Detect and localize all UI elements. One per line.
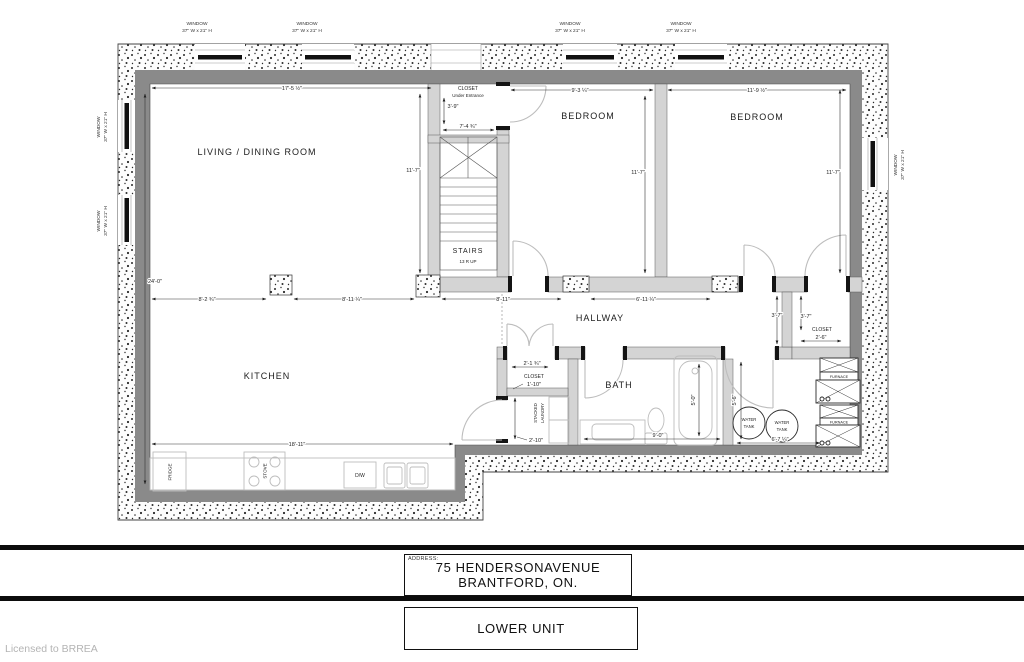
dim-span4: 6'-11 ¼" bbox=[636, 297, 656, 303]
dim-span2: 8'-11 ¼" bbox=[342, 297, 362, 303]
divider-bar-top bbox=[0, 545, 1024, 550]
bedroom2-label: BEDROOM bbox=[730, 112, 784, 122]
window-label-line2: 37" W x 21" H bbox=[900, 150, 906, 180]
wall-hall-south-c bbox=[623, 347, 725, 359]
water-tank-label-line2: TANK bbox=[777, 427, 788, 432]
dim-living-right: 11'-7" bbox=[406, 168, 420, 174]
window-left-1 bbox=[118, 100, 135, 152]
wall-hall-north-c bbox=[773, 277, 807, 292]
dim-span1: 8'-2 ¾" bbox=[198, 297, 215, 303]
post-stairs bbox=[416, 275, 440, 297]
wall-hall-north-d bbox=[848, 277, 862, 292]
window-label-line1: WINDOW bbox=[186, 21, 208, 27]
living-room-label: LIVING / DINING ROOM bbox=[197, 147, 316, 157]
dim-kitchen-width: 18'-11" bbox=[289, 442, 306, 448]
dim-bath-width: 9'-0" bbox=[653, 433, 664, 439]
window-label-line1: WINDOW bbox=[296, 21, 318, 27]
wall-closet-right-west bbox=[782, 292, 792, 347]
window-label-line2: 37" W x 21" H bbox=[292, 28, 322, 34]
dim-closet-right-d1: 3'-7" bbox=[772, 313, 783, 319]
floorplan-drawing: WINDOW 37" W x 21" H WINDOW 37" W x 21" … bbox=[0, 0, 1024, 545]
wall-hall-north-a bbox=[440, 277, 511, 292]
window-label-right-1: WINDOW 37" W x 21" H bbox=[893, 150, 906, 180]
fridge-label: FRIDGE bbox=[168, 463, 173, 480]
window-label-line2: 37" W x 21" H bbox=[103, 206, 109, 236]
window-left-2 bbox=[118, 195, 135, 245]
furnace-1: FURNACE bbox=[816, 358, 860, 403]
window-label-line2: 37" W x 21" H bbox=[182, 28, 212, 34]
post-hall-1 bbox=[563, 276, 589, 292]
bedroom1-label: BEDROOM bbox=[561, 111, 615, 121]
furnace-2: FURNACE bbox=[816, 405, 860, 447]
window-label-left-2: WINDOW 37" W x 21" H bbox=[96, 206, 109, 236]
floorplan-page: WINDOW 37" W x 21" H WINDOW 37" W x 21" … bbox=[0, 0, 1024, 662]
window-right-1 bbox=[862, 138, 888, 190]
wall-living-stairs bbox=[428, 84, 440, 292]
laundry-label-line2: LAUNDRY bbox=[540, 403, 545, 423]
address-line1: 75 HENDERSONAVENUE bbox=[436, 560, 600, 575]
stairs-label: STAIRS bbox=[453, 248, 484, 255]
window-label-line1: WINDOW bbox=[670, 21, 692, 27]
dim-closet-right-width: 2'-6" bbox=[816, 335, 827, 341]
dim-closet-right-d2: 3'-7" bbox=[801, 314, 812, 320]
window-label-line1: WINDOW bbox=[893, 154, 899, 176]
entrance-opening bbox=[431, 44, 481, 70]
dim-bath-height: 5'-0" bbox=[691, 394, 697, 405]
dim-living-height: 24'-0" bbox=[148, 279, 162, 285]
window-top-4 bbox=[675, 44, 727, 70]
unit-label: LOWER UNIT bbox=[477, 621, 565, 636]
wall-bedroom1-west bbox=[497, 130, 509, 277]
unit-box: LOWER UNIT bbox=[404, 607, 638, 650]
address-label: ADDRESS: bbox=[408, 556, 439, 562]
window-label-line2: 37" W x 21" H bbox=[666, 28, 696, 34]
dim-hall-closet-width: 2'-1 ¾" bbox=[523, 361, 540, 367]
window-label-line1: WINDOW bbox=[96, 116, 102, 138]
window-label-line1: WINDOW bbox=[96, 210, 102, 232]
wall-closet-right-south bbox=[792, 347, 850, 359]
wall-bath-west bbox=[568, 359, 578, 445]
stove-label: STOVE bbox=[263, 463, 268, 478]
dim-entr-closet-depth: 3'-9" bbox=[448, 104, 459, 110]
window-label-top-4: WINDOW 37" W x 21" H bbox=[666, 21, 696, 34]
license-watermark: Licensed to BRREA bbox=[5, 643, 98, 655]
dim-span3: 8'-11" bbox=[496, 297, 510, 303]
dim-bedroom2-width: 11'-9 ½" bbox=[747, 87, 767, 94]
dishwasher-label: D/W bbox=[355, 473, 365, 479]
hall-closet-label: CLOSET bbox=[524, 374, 544, 380]
entrance-closet-label-line2: Under Entrance bbox=[452, 93, 484, 98]
divider-bar-bottom bbox=[0, 596, 1024, 601]
dim-utility-height: 5'-6" bbox=[732, 394, 738, 405]
window-top-3 bbox=[563, 44, 617, 70]
dim-laundry-depth: 2'-10" bbox=[529, 438, 543, 444]
entrance-closet-label-line1: CLOSET bbox=[458, 86, 478, 92]
wall-hall-south-b bbox=[555, 347, 585, 359]
address-line2: BRANTFORD, ON. bbox=[458, 575, 578, 590]
window-label-line2: 37" W x 21" H bbox=[103, 112, 109, 142]
laundry-label-line1: STACKED bbox=[533, 403, 538, 422]
window-top-2 bbox=[302, 44, 354, 70]
wall-between-bedrooms bbox=[655, 84, 667, 277]
window-label-top-1: WINDOW 37" W x 21" H bbox=[182, 21, 212, 34]
dim-bedroom2-height: 11'-7" bbox=[826, 170, 840, 176]
dim-bedroom1-height: 11'-7" bbox=[631, 170, 645, 176]
water-tank-label-line1: WATER bbox=[742, 417, 757, 422]
furnace-label: FURNACE bbox=[830, 375, 849, 379]
dim-utility-width: 6'-7 ¼" bbox=[771, 437, 788, 443]
right-closet-label: CLOSET bbox=[812, 327, 832, 333]
stairs-note: 13 R UP bbox=[459, 259, 476, 264]
water-tank-label-line2: TANK bbox=[744, 424, 755, 429]
window-label-top-3: WINDOW 37" W x 21" H bbox=[555, 21, 585, 34]
wall-closet-laundry-divider bbox=[507, 388, 568, 396]
dim-hall-closet-depth: 1'-10" bbox=[527, 382, 541, 388]
window-label-left-1: WINDOW 37" W x 21" H bbox=[96, 112, 109, 142]
water-tank-1: WATER TANK bbox=[733, 407, 765, 439]
dim-living-width: 17'-5 ½" bbox=[282, 85, 302, 92]
furnace-label: FURNACE bbox=[830, 421, 849, 425]
water-tank-label-line1: WATER bbox=[775, 420, 790, 425]
post-living bbox=[270, 275, 292, 295]
wall-corridor-west bbox=[497, 359, 507, 400]
kitchen-label: KITCHEN bbox=[244, 371, 291, 381]
bath-label: BATH bbox=[605, 380, 632, 390]
window-label-top-2: WINDOW 37" W x 21" H bbox=[292, 21, 322, 34]
window-top-1 bbox=[195, 44, 245, 70]
window-label-line1: WINDOW bbox=[559, 21, 581, 27]
dim-bedroom1-width: 9'-3 ¼" bbox=[571, 88, 588, 94]
dim-entr-closet-width: 7'-4 ¾" bbox=[459, 124, 476, 130]
post-hall-2 bbox=[712, 276, 738, 292]
hallway-label: HALLWAY bbox=[576, 313, 624, 323]
window-label-line2: 37" W x 21" H bbox=[555, 28, 585, 34]
address-box: ADDRESS: 75 HENDERSONAVENUE BRANTFORD, O… bbox=[404, 554, 632, 596]
